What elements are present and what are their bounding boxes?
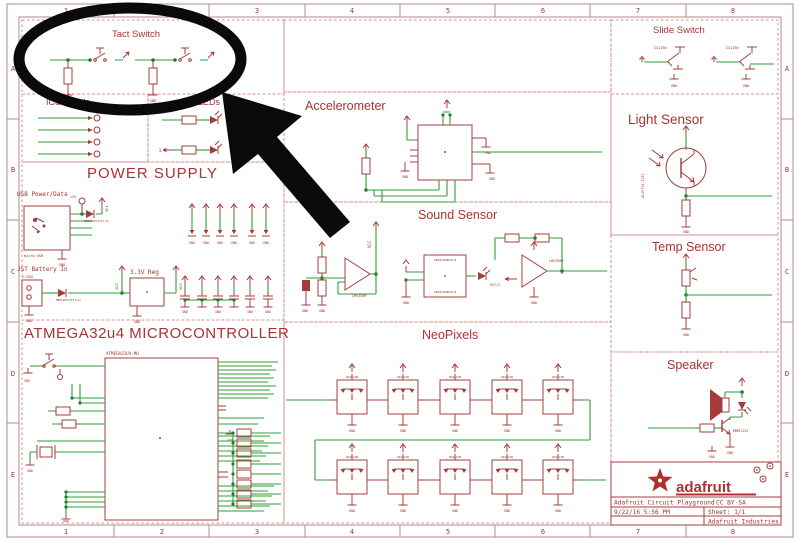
gnd-label: GND bbox=[302, 309, 308, 313]
speaker-circuit: MMBT2222 GND GND bbox=[648, 378, 751, 459]
grid-col: 8 bbox=[731, 528, 735, 536]
vcc-half-label: VCC/2 bbox=[490, 283, 500, 287]
gnd-label: GND bbox=[26, 318, 34, 323]
opamp-part-label: LMV358M bbox=[549, 259, 563, 263]
gnd-label: GND bbox=[683, 333, 689, 337]
reg-label: 3.3V Reg bbox=[130, 269, 159, 276]
neopixel-part-label: WS2812B bbox=[552, 375, 564, 379]
slide-part-label: SG1290 bbox=[654, 46, 667, 50]
grid-col: 8 bbox=[731, 7, 735, 15]
neopixel-part-label: WS2812B bbox=[449, 375, 461, 379]
slide-switch-heading: Slide Switch bbox=[653, 25, 705, 36]
temp-sensor-circuit: GND bbox=[682, 254, 773, 337]
grid-col: 2 bbox=[160, 528, 164, 536]
neopixel-part-label: WS2812B bbox=[346, 455, 358, 459]
vcc-label: VCC bbox=[367, 240, 372, 248]
diode-part-label: MBR120VLSFT1(A) bbox=[56, 298, 82, 302]
grid-col: 6 bbox=[541, 7, 545, 15]
gnd-label: GND bbox=[727, 451, 733, 455]
gnd-label: GND bbox=[402, 175, 408, 179]
gnd-label: GND bbox=[452, 429, 458, 433]
gnd-label: GND bbox=[555, 429, 561, 433]
light-part-label: ALSPT19-315C bbox=[641, 174, 645, 199]
tact-switch-heading: Tact Switch bbox=[112, 29, 160, 40]
gnd-label: GND bbox=[671, 84, 677, 88]
gnd-label: GND bbox=[247, 310, 253, 314]
adafruit-logo: adafruit bbox=[648, 468, 756, 496]
title-date: 9/22/16 5:56 PM bbox=[614, 509, 670, 516]
grid-row: D bbox=[785, 370, 789, 378]
leds-circuit: 1 bbox=[159, 111, 222, 154]
icsp-pads-circuit bbox=[38, 115, 100, 157]
title-license: CC BY-SA bbox=[716, 500, 746, 507]
highlight-arrow-icon bbox=[222, 92, 350, 238]
microcontroller-heading: ATMEGA32u4 MICROCONTROLLER bbox=[24, 325, 289, 342]
gnd-label: GND bbox=[189, 241, 195, 245]
microcontroller-circuit: ATMEGA32U4-MU GND GND GND GND bbox=[24, 351, 282, 523]
gnd-label: GND bbox=[150, 98, 158, 103]
gnd-label: GND bbox=[452, 509, 458, 513]
gnd-label: GND bbox=[63, 519, 69, 523]
grid-col: 3 bbox=[255, 528, 259, 536]
gnd-label: GND bbox=[24, 379, 30, 383]
grid-row: B bbox=[11, 166, 15, 174]
accelerometer-circuit: GND GND GND bbox=[362, 100, 602, 202]
neopixel-part-label: WS2812B bbox=[346, 375, 358, 379]
grid-col: 3 bbox=[255, 7, 259, 15]
gnd-label: GND bbox=[263, 241, 269, 245]
gnd-label: GND bbox=[403, 301, 409, 305]
gnd-label: GND bbox=[134, 319, 142, 324]
gnd-label: GND bbox=[555, 509, 561, 513]
gnd-label: GND bbox=[203, 241, 209, 245]
highlight-annotation bbox=[19, 8, 350, 238]
transistor-part-label: MMBT2222 bbox=[733, 429, 748, 433]
title-sheet: Sheet: 1/1 bbox=[708, 509, 746, 516]
grid-col: 6 bbox=[541, 528, 545, 536]
vcc-label: VCC bbox=[104, 205, 109, 212]
grid-row: B bbox=[785, 166, 789, 174]
grid-col: 7 bbox=[636, 528, 640, 536]
light-sensor-heading: Light Sensor bbox=[628, 112, 704, 127]
gnd-label: GND bbox=[489, 177, 495, 181]
grid-col: 4 bbox=[350, 7, 354, 15]
gnd-label: GND bbox=[182, 310, 188, 314]
gnd-label: GND bbox=[249, 241, 255, 245]
gnd-label: GND bbox=[400, 509, 406, 513]
mcu-part-label: ATMEGA32U4-MU bbox=[106, 351, 139, 356]
sound-sensor-heading: Sound Sensor bbox=[418, 208, 497, 222]
gnd-label: GND bbox=[400, 429, 406, 433]
grid-row: D bbox=[11, 370, 15, 378]
gnd-label: GND bbox=[349, 509, 355, 513]
gnd-label: GND bbox=[349, 429, 355, 433]
led-ref-label: 1 bbox=[159, 148, 162, 154]
grid-col: 5 bbox=[446, 528, 450, 536]
decoupling-caps-top: GND GND GND GND GND GND bbox=[188, 204, 270, 245]
temp-sensor-heading: Temp Sensor bbox=[652, 240, 726, 254]
neopixel-part-label: WS2812B bbox=[552, 455, 564, 459]
power-supply-heading: POWER SUPPLY bbox=[87, 165, 218, 182]
title-product: Adafruit Circuit Playground bbox=[614, 500, 715, 507]
adafruit-wordmark: adafruit bbox=[676, 479, 731, 496]
gnd-label: GND bbox=[743, 84, 749, 88]
grid-row: C bbox=[11, 268, 15, 276]
grid-col: 4 bbox=[350, 528, 354, 536]
opamp-part-label: LMV358M bbox=[352, 294, 366, 298]
neopixel-part-label: WS2812B bbox=[501, 455, 513, 459]
title-company: Adafruit Industries bbox=[708, 519, 779, 526]
highlight-circle-icon bbox=[19, 8, 241, 110]
gnd-label: GND bbox=[319, 309, 325, 313]
decoupling-caps-bottom: GND GND GND GND bbox=[180, 276, 273, 314]
mic-part-label: SPW2430HR5H-B bbox=[434, 258, 456, 262]
schematic-page: 1 2 3 4 5 6 7 8 1 2 3 4 5 6 7 8 A B C D … bbox=[0, 0, 800, 542]
gnd-label: GND bbox=[265, 310, 271, 314]
tact-switch-circuit: GND GND bbox=[50, 48, 214, 103]
grid-col: 7 bbox=[636, 7, 640, 15]
gnd-label: GND bbox=[709, 455, 715, 459]
usb-power-label: USB Power/Data bbox=[17, 191, 68, 198]
title-block: adafruit Adafruit Circuit Playground CC … bbox=[611, 462, 781, 526]
grid-row: E bbox=[11, 471, 15, 479]
neopixel-part-label: WS2812B bbox=[501, 375, 513, 379]
neopixels-circuit: WS2812B WS2812B WS2812B WS2812B WS2812B … bbox=[286, 364, 606, 513]
grid-row: E bbox=[785, 471, 789, 479]
neopixel-part-label: WS2812B bbox=[397, 375, 409, 379]
gnd-label: GND bbox=[531, 301, 537, 305]
sound-sensor-circuit: GND GND LMV358M VCC SPW2430HR5H-B SPW243… bbox=[302, 222, 608, 313]
gnd-label: GND bbox=[231, 241, 237, 245]
gnd-label: GND bbox=[215, 310, 221, 314]
vcc-label: VCC bbox=[114, 283, 119, 290]
light-sensor-circuit: ALSPT19-315C GND bbox=[641, 126, 772, 234]
slide-switch-circuit: SG1290 GND SG1290 GND bbox=[640, 46, 775, 88]
speaker-heading: Speaker bbox=[667, 358, 714, 372]
schematic-canvas: 1 2 3 4 5 6 7 8 1 2 3 4 5 6 7 8 A B C D … bbox=[0, 0, 800, 542]
slide-part-label: SG1290 bbox=[726, 46, 739, 50]
power-supply-circuit: USB Power/Data micro USB +5V VCC MBR120V… bbox=[17, 191, 273, 324]
accelerometer-heading: Accelerometer bbox=[305, 99, 386, 113]
neopixels-heading: NeoPixels bbox=[422, 328, 478, 342]
gnd-label: GND bbox=[27, 469, 33, 473]
vcc-label: VCC bbox=[178, 283, 183, 290]
grid-row: A bbox=[785, 65, 790, 73]
micro-usb-label: micro USB bbox=[24, 254, 43, 258]
grid-col: 1 bbox=[64, 528, 68, 536]
gnd-label: GND bbox=[504, 509, 510, 513]
gnd-label: GND bbox=[504, 429, 510, 433]
mic-part-label: SPW2430HR5H-B bbox=[434, 290, 456, 294]
gnd-label: GND bbox=[217, 241, 223, 245]
plus5v-label: +5V bbox=[70, 195, 77, 199]
diode-part-label: MBR120VLSFT1(A) bbox=[84, 219, 110, 223]
grid-col: 5 bbox=[446, 7, 450, 15]
neopixel-part-label: WS2812B bbox=[397, 455, 409, 459]
gnd-label: GND bbox=[683, 230, 689, 234]
grid-row: C bbox=[785, 268, 789, 276]
jst-label: JST Battery In bbox=[17, 266, 68, 273]
neopixel-part-label: WS2812B bbox=[449, 455, 461, 459]
jst-voltage-label: 2-5VDC bbox=[22, 275, 34, 279]
